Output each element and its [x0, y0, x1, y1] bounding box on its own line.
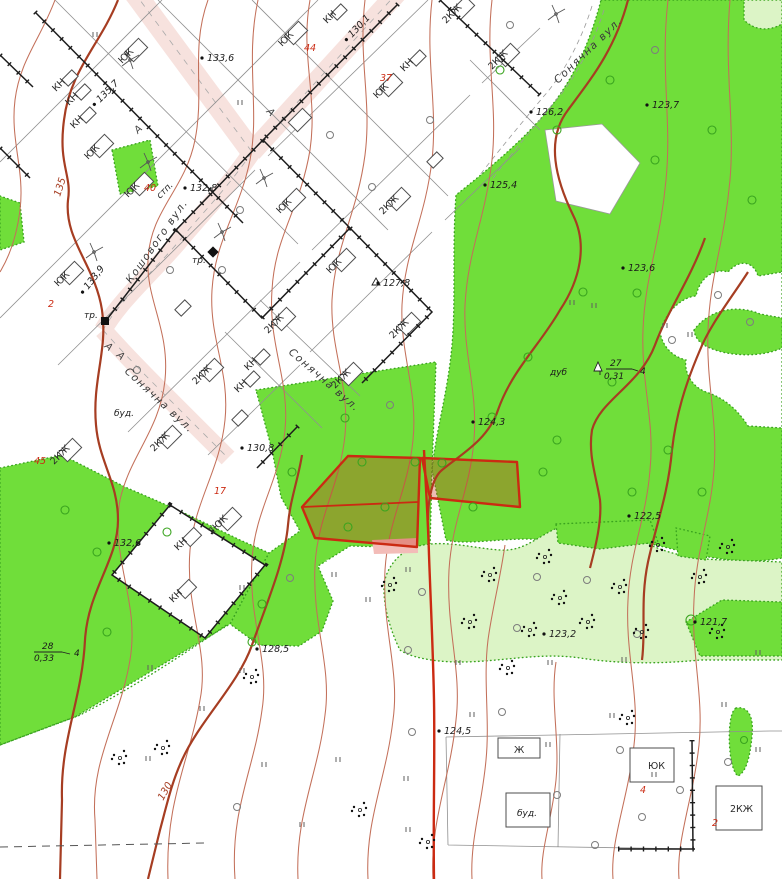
spot-elevation-dot [483, 183, 486, 186]
misc-label: тр. [84, 311, 98, 321]
plot-number-label: 37 [380, 73, 392, 84]
spot-elevation-label: 126,2 [536, 107, 563, 118]
building-label: Ж [514, 745, 525, 756]
spot-elevation-label: 132,8 [190, 183, 217, 194]
misc-label: буд. [114, 409, 134, 419]
spot-elevation-label: 132,6 [114, 538, 141, 549]
spot-elevation-dot [107, 541, 110, 544]
plot-number-label: 40 [144, 183, 156, 194]
spot-elevation-label: 125,4 [490, 180, 517, 191]
plot-number-label: 2 [712, 818, 718, 829]
spot-elevation-dot [376, 281, 379, 284]
forest-stand-label: 4 [74, 649, 80, 659]
spot-elevation-label: 123,2 [549, 629, 576, 640]
plot-number-label: 45 [34, 456, 46, 467]
plot-number-label: 17 [214, 486, 226, 497]
forest-stand-label: 0,31 [604, 372, 624, 382]
spot-elevation-label: 121,7 [700, 617, 727, 628]
misc-label: тр. [192, 256, 206, 266]
spot-elevation-dot [240, 446, 243, 449]
highlight-parcel-right [422, 458, 520, 507]
spot-elevation-label: 124,3 [478, 417, 505, 428]
spot-elevation-label: 128,5 [262, 644, 289, 655]
spot-elevation-label: 122,5 [634, 511, 661, 522]
misc-label: буд. [517, 809, 537, 819]
spot-elevation-dot [621, 266, 624, 269]
spot-elevation-label: 133,6 [207, 53, 234, 64]
forest-stand-label: дуб [549, 368, 568, 378]
spot-elevation-dot [542, 632, 545, 635]
spot-elevation-dot [471, 420, 474, 423]
spot-elevation-label: 130,8 [247, 443, 274, 454]
topo-map-page: 135,7133,6130,1132,8126,2123,7125,4123,6… [0, 0, 782, 879]
spot-elevation-dot [200, 56, 203, 59]
spot-elevation-dot [437, 729, 440, 732]
spot-elevation-dot [627, 514, 630, 517]
spot-elevation-dot [255, 647, 258, 650]
topo-map-canvas[interactable]: 135,7133,6130,1132,8126,2123,7125,4123,6… [0, 0, 782, 879]
forest-stand-label: 4 [640, 367, 646, 377]
spot-elevation-label: 123,7 [652, 100, 679, 111]
spot-elevation-label: 123,6 [628, 263, 655, 274]
building-label: ЮК [648, 761, 665, 772]
forest-stand-label: 27 [610, 359, 622, 369]
spot-elevation-dot [529, 110, 532, 113]
forest-stand-label: 28 [42, 642, 54, 652]
spot-elevation-label: 127,8 [383, 278, 410, 289]
spot-elevation-dot [693, 620, 696, 623]
spot-elevation-dot [183, 186, 186, 189]
building-label: 2КЖ [730, 804, 754, 815]
spot-elevation-dot [645, 103, 648, 106]
plot-number-label: 2 [48, 299, 54, 310]
forest-stand-label: 0,33 [34, 654, 54, 664]
plot-number-label: 44 [304, 43, 316, 54]
plot-number-label: 4 [640, 785, 646, 796]
spot-elevation-label: 124,5 [444, 726, 471, 737]
